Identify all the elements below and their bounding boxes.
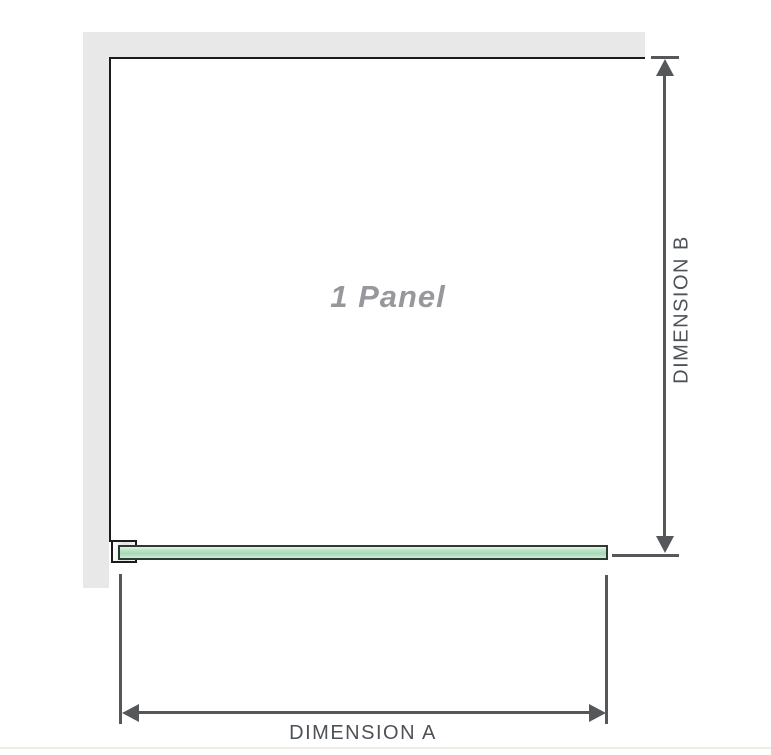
panel-outline-left xyxy=(109,57,111,542)
glass-panel-bar xyxy=(118,545,608,560)
wall-top-band xyxy=(83,32,645,58)
arrow-up-icon xyxy=(656,59,674,76)
extension-line-left xyxy=(119,574,122,724)
panel-label: 1 Panel xyxy=(188,279,588,315)
arrow-right-icon xyxy=(589,704,606,722)
bottom-edge-line xyxy=(0,747,771,749)
dimension-b-label: DIMENSION B xyxy=(671,210,694,410)
dimension-a-line xyxy=(126,711,602,714)
dimension-a-label: DIMENSION A xyxy=(163,722,563,745)
extension-line-right xyxy=(605,575,608,724)
shower-panel-diagram: 1 Panel DIMENSION B DIMENSION A xyxy=(0,0,771,755)
dimension-b-line xyxy=(663,66,666,544)
arrow-left-icon xyxy=(122,704,139,722)
arrow-down-icon xyxy=(656,536,674,553)
dimension-b-bottom-tick xyxy=(612,554,679,557)
wall-left-band xyxy=(83,32,109,588)
panel-outline-top xyxy=(109,57,645,59)
